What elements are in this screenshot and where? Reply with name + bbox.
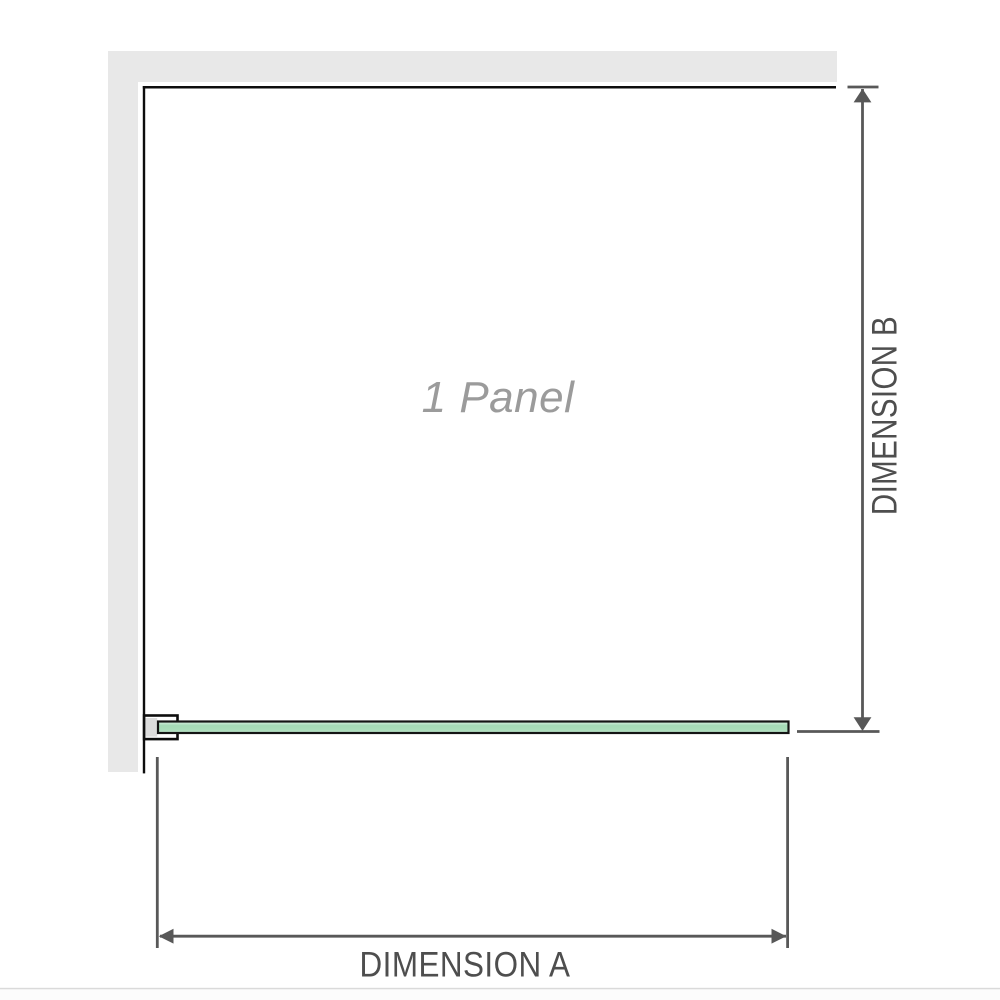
svg-text:DIMENSION A: DIMENSION A — [360, 946, 571, 985]
svg-text:1 Panel: 1 Panel — [422, 373, 575, 422]
svg-text:DIMENSION B: DIMENSION B — [865, 316, 904, 515]
